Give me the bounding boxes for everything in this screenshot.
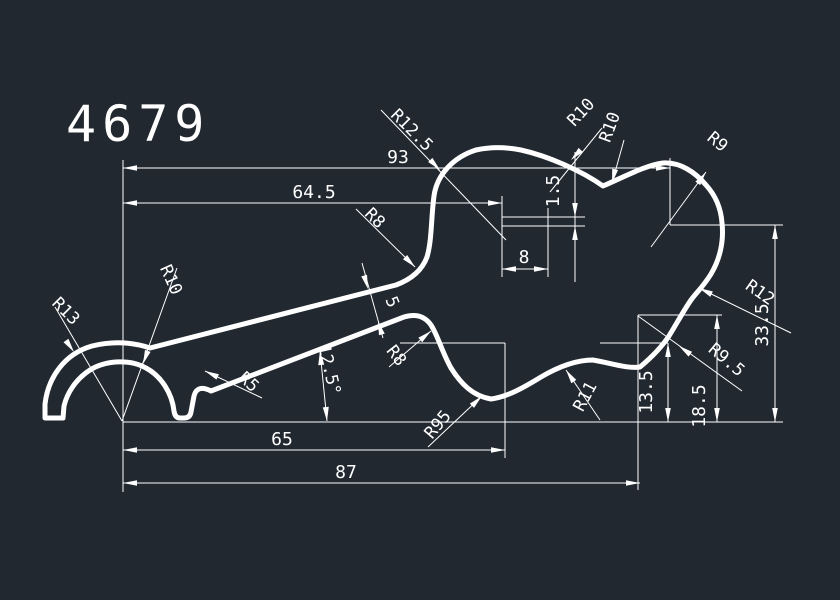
label-r8-lower: R8 [382,342,410,370]
dim-65-text: 65 [271,429,293,450]
label-r9_5: R9.5 [704,339,748,381]
leader-r5-arrow [204,368,219,379]
dim-87-text: 87 [335,462,357,483]
dim-33_5-text: 33.5 [752,303,773,346]
label-r11: R11 [570,378,602,415]
thickness-5-text: 5 [380,294,402,311]
label-r10-top1: R10 [564,95,600,131]
label-r9: R9 [703,128,732,156]
leader-r10-left-arrow [140,350,150,365]
cad-drawing-canvas[interactable]: 4679 93 64.5 8 1.5 65 87 [0,0,840,600]
leader-r11-arrow [564,368,577,383]
dim-93-text: 93 [387,147,409,168]
profile-path [45,148,723,418]
dim-8-text: 8 [519,247,530,268]
label-r8-upper: R8 [360,204,389,233]
leader-r12_5-arrow [428,158,442,172]
label-r10-top2: R10 [596,109,625,145]
label-r95: R95 [421,407,456,443]
label-r10-left: R10 [155,262,186,298]
cad-drawing: 4679 93 64.5 8 1.5 65 87 [0,0,840,600]
angle-12_5-text: 12.5° [313,343,344,397]
drawing-number: 4679 [66,95,210,153]
dim-13_5-text: 13.5 [636,370,657,413]
profile-outline [45,148,723,418]
dim-18_5-text: 18.5 [689,384,710,427]
label-r13: R13 [48,294,84,330]
dim-64_5-text: 64.5 [292,182,335,203]
dim-1_5-text: 1.5 [543,175,564,208]
thickness-5-arrow-top [361,275,371,290]
